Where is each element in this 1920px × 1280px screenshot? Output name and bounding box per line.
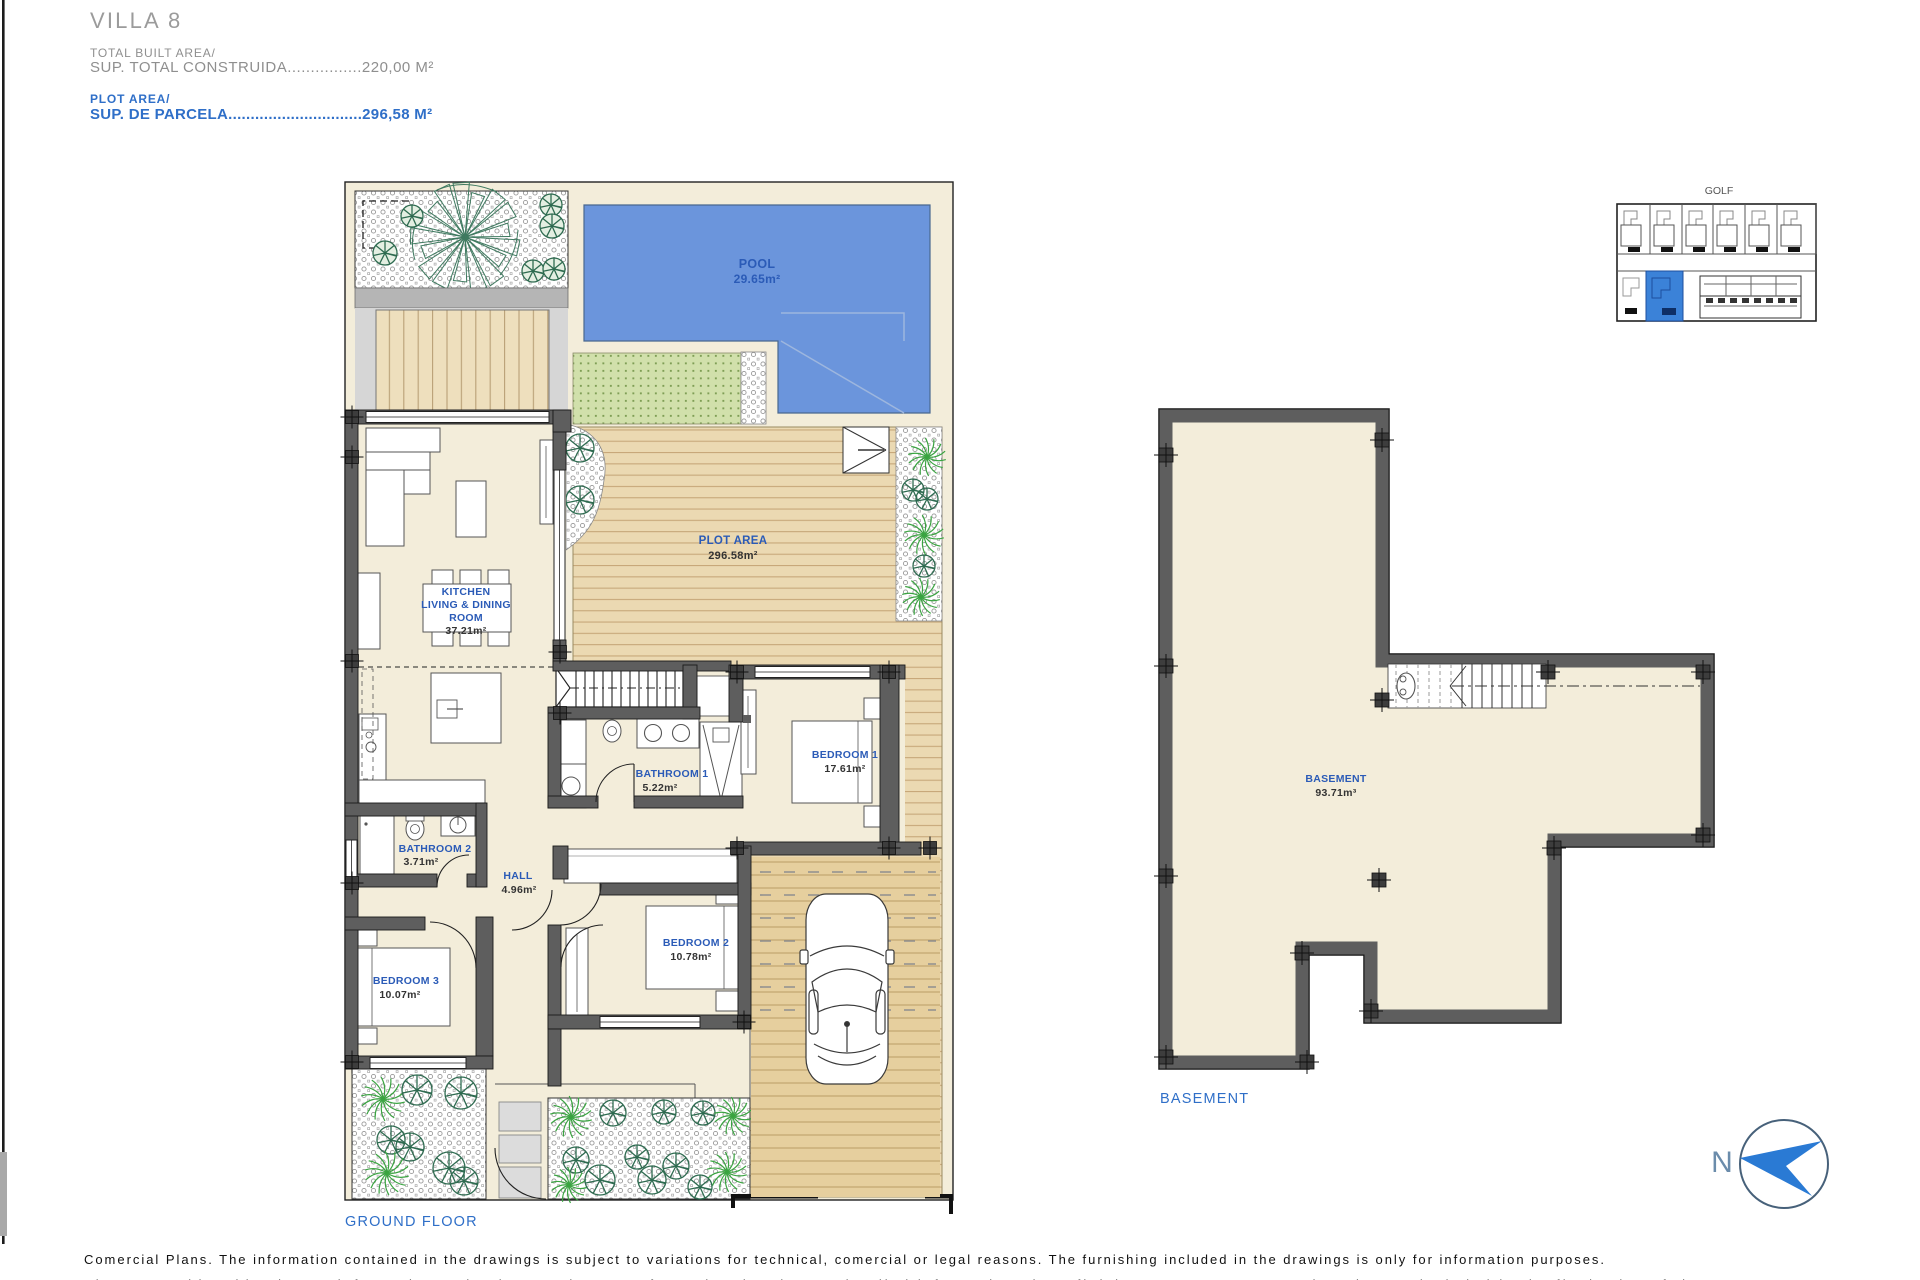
svg-text:N: N: [1711, 1146, 1733, 1179]
svg-text:HALL: HALL: [503, 870, 532, 882]
svg-text:296.58m²: 296.58m²: [708, 550, 758, 562]
svg-text:GOLF: GOLF: [1705, 185, 1734, 197]
svg-text:29.65m²: 29.65m²: [734, 272, 781, 286]
svg-text:BASEMENT: BASEMENT: [1305, 773, 1367, 785]
svg-text:SUP. DE PARCELA...............: SUP. DE PARCELA.........................…: [90, 106, 432, 123]
svg-text:37.21m²: 37.21m²: [445, 625, 486, 637]
svg-text:BASEMENT: BASEMENT: [1160, 1091, 1249, 1107]
svg-text:PLOT AREA: PLOT AREA: [699, 535, 768, 547]
svg-text:ROOM: ROOM: [449, 612, 483, 624]
svg-text:5.22m²: 5.22m²: [642, 782, 677, 794]
svg-text:4.96m²: 4.96m²: [501, 884, 536, 896]
svg-text:LIVING & DINING: LIVING & DINING: [421, 599, 511, 611]
svg-text:17.61m²: 17.61m²: [824, 763, 865, 775]
svg-text:Comercial Plans. The informati: Comercial Plans. The information contain…: [84, 1252, 1604, 1267]
svg-text:BEDROOM 1: BEDROOM 1: [812, 749, 878, 761]
svg-text:BATHROOM 2: BATHROOM 2: [399, 843, 472, 855]
svg-text:PLOT AREA/: PLOT AREA/: [90, 92, 170, 106]
svg-text:KITCHEN: KITCHEN: [442, 586, 491, 598]
svg-text:10.07m²: 10.07m²: [379, 989, 420, 1001]
svg-text:TOTAL BUILT AREA/: TOTAL BUILT AREA/: [90, 46, 216, 60]
svg-text:BEDROOM 2: BEDROOM 2: [663, 937, 729, 949]
svg-text:GROUND FLOOR: GROUND FLOOR: [345, 1214, 478, 1230]
svg-text:BATHROOM 1: BATHROOM 1: [636, 768, 709, 780]
svg-text:POOL: POOL: [739, 257, 776, 271]
svg-text:BEDROOM 3: BEDROOM 3: [373, 975, 439, 987]
svg-text:10.78m²: 10.78m²: [670, 951, 711, 963]
svg-text:3.71m²: 3.71m²: [403, 856, 438, 868]
svg-text:SUP. TOTAL CONSTRUIDA.........: SUP. TOTAL CONSTRUIDA................220…: [90, 59, 434, 76]
svg-text:VILLA 8: VILLA 8: [90, 8, 182, 33]
svg-text:93.71m³: 93.71m³: [1315, 787, 1356, 799]
